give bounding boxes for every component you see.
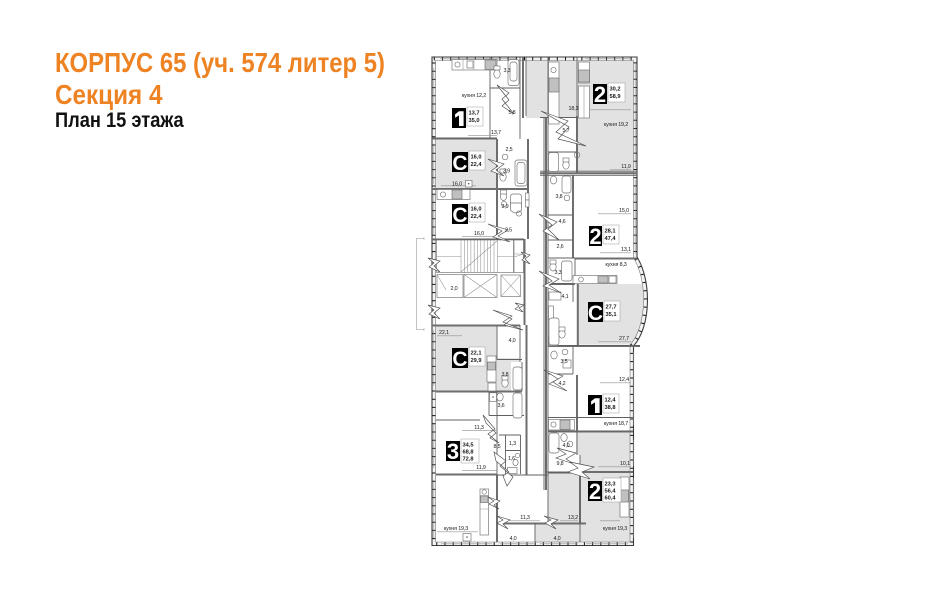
svg-text:2,6: 2,6: [556, 244, 563, 250]
svg-text:2,0: 2,0: [450, 286, 457, 292]
svg-text:35,1: 35,1: [606, 312, 617, 318]
svg-text:кухня 18,7: кухня 18,7: [604, 421, 628, 427]
svg-text:11,9: 11,9: [621, 164, 631, 170]
svg-text:22,4: 22,4: [471, 214, 483, 220]
svg-text:23,3: 23,3: [605, 482, 616, 488]
svg-text:2: 2: [589, 479, 601, 504]
svg-text:22,1: 22,1: [471, 351, 482, 357]
svg-text:кухня 12,2: кухня 12,2: [462, 93, 486, 99]
svg-text:34,5: 34,5: [463, 443, 474, 449]
svg-text:16,0: 16,0: [471, 207, 482, 213]
svg-text:16,0: 16,0: [452, 182, 462, 188]
svg-text:C: C: [588, 302, 603, 325]
svg-text:2,5: 2,5: [505, 147, 512, 153]
svg-text:27,7: 27,7: [619, 336, 629, 342]
svg-text:C: C: [452, 152, 467, 175]
svg-text:10,1: 10,1: [620, 461, 630, 467]
svg-text:16,0: 16,0: [474, 231, 484, 237]
svg-text:1,3: 1,3: [509, 441, 516, 447]
svg-text:1,6: 1,6: [508, 456, 515, 462]
svg-text:11,3: 11,3: [520, 515, 530, 521]
svg-text:5,8: 5,8: [508, 110, 515, 116]
svg-text:5,7: 5,7: [562, 128, 569, 134]
svg-text:22,4: 22,4: [471, 162, 483, 168]
svg-text:C: C: [452, 204, 467, 227]
svg-text:28,1: 28,1: [605, 229, 616, 235]
svg-text:кухня 19,3: кухня 19,3: [603, 526, 627, 532]
svg-text:3,3: 3,3: [554, 270, 561, 276]
svg-text:15,0: 15,0: [619, 208, 629, 214]
svg-text:9,8: 9,8: [556, 461, 563, 467]
svg-text:72,8: 72,8: [463, 457, 474, 463]
svg-text:3,8: 3,8: [501, 372, 508, 378]
svg-text:2: 2: [594, 82, 606, 107]
svg-text:29,9: 29,9: [471, 358, 482, 364]
svg-text:68,8: 68,8: [463, 450, 474, 456]
svg-text:3: 3: [447, 439, 459, 464]
svg-text:4,1: 4,1: [561, 294, 568, 300]
svg-text:58,9: 58,9: [610, 94, 621, 100]
svg-text:11,9: 11,9: [476, 465, 486, 471]
svg-text:18,3: 18,3: [569, 106, 579, 112]
svg-text:12,4: 12,4: [605, 398, 617, 404]
svg-text:13,7: 13,7: [469, 111, 480, 117]
svg-text:22,1: 22,1: [439, 330, 449, 336]
svg-text:3,8: 3,8: [555, 194, 562, 200]
svg-text:3,9: 3,9: [503, 169, 510, 175]
svg-text:4,0: 4,0: [562, 443, 569, 449]
svg-text:4,2: 4,2: [558, 381, 565, 387]
svg-text:56,4: 56,4: [605, 489, 617, 495]
svg-text:кухня 19,2: кухня 19,2: [604, 122, 628, 128]
svg-text:38,8: 38,8: [605, 405, 616, 411]
svg-text:кухня 8,3: кухня 8,3: [605, 262, 626, 268]
svg-text:60,4: 60,4: [605, 496, 617, 502]
svg-text:кухня 19,3: кухня 19,3: [444, 526, 468, 532]
svg-text:C: C: [452, 348, 467, 371]
svg-text:4,0: 4,0: [553, 536, 560, 542]
svg-text:3,5: 3,5: [560, 359, 567, 365]
svg-text:13,7: 13,7: [491, 130, 501, 136]
svg-text:2: 2: [589, 224, 601, 249]
svg-text:35,0: 35,0: [469, 118, 480, 124]
svg-text:3,3: 3,3: [503, 68, 510, 74]
svg-text:12,4: 12,4: [619, 377, 629, 383]
svg-text:3,9: 3,9: [501, 204, 508, 210]
svg-text:13,2: 13,2: [568, 515, 578, 521]
svg-text:30,2: 30,2: [610, 87, 621, 93]
svg-text:4,6: 4,6: [558, 219, 565, 225]
svg-text:47,4: 47,4: [605, 236, 617, 242]
svg-text:3,6: 3,6: [497, 403, 504, 409]
svg-text:11,3: 11,3: [474, 425, 484, 431]
svg-text:8,5: 8,5: [493, 444, 500, 450]
svg-text:13,1: 13,1: [621, 247, 631, 253]
svg-text:27,7: 27,7: [606, 305, 617, 311]
svg-text:4,0: 4,0: [509, 536, 516, 542]
svg-text:4,0: 4,0: [508, 338, 515, 344]
svg-text:16,0: 16,0: [471, 155, 482, 161]
svg-text:2,5: 2,5: [505, 228, 512, 234]
